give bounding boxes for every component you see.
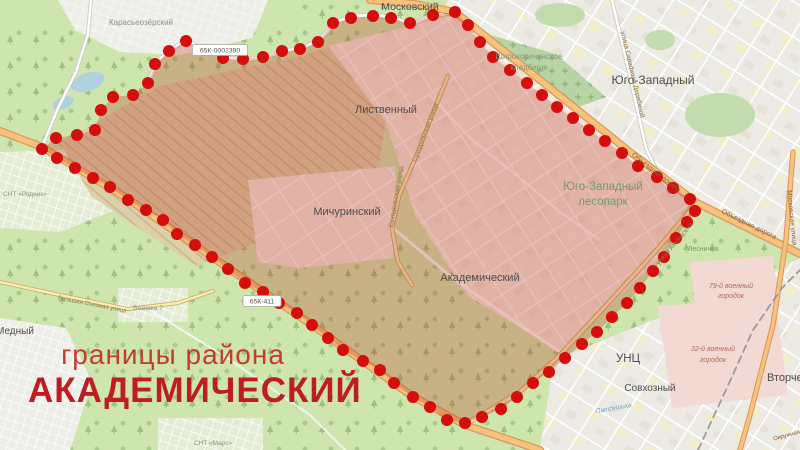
boundary-dot <box>50 132 62 144</box>
slide: 65К-000239065К-411 МосковскийКарасьеозёр… <box>0 0 800 450</box>
boundary-dot <box>591 326 603 338</box>
map-label: Карасьеозёрский <box>109 18 173 27</box>
boundary-dot <box>122 194 134 206</box>
boundary-dot <box>495 403 507 415</box>
boundary-dot <box>407 391 419 403</box>
map-label: Вторчермет <box>767 372 800 384</box>
boundary-dot <box>87 172 99 184</box>
boundary-dot <box>441 414 453 426</box>
boundary-dot <box>424 401 436 413</box>
boundary-dot <box>345 12 357 24</box>
boundary-dot <box>51 152 63 164</box>
boundary-dot <box>476 411 488 423</box>
boundary-dot <box>357 355 369 367</box>
boundary-dot <box>327 17 339 29</box>
boundary-dot <box>536 89 548 101</box>
map-label: Лесничка <box>688 246 719 253</box>
boundary-dot <box>474 36 486 48</box>
boundary-dot <box>140 204 152 216</box>
boundary-dot <box>89 124 101 136</box>
boundary-dot <box>337 344 349 356</box>
boundary-dot <box>599 135 611 147</box>
map-label: Лиственный <box>355 104 417 116</box>
boundary-dot <box>36 143 48 155</box>
boundary-dot <box>149 58 161 70</box>
boundary-dot <box>171 228 183 240</box>
boundary-dot <box>385 12 397 24</box>
map-label: Юго-Западный <box>612 73 695 87</box>
map-label: Мичуринский <box>313 206 380 218</box>
map-label: Вязовка 7 <box>133 305 163 312</box>
map-label: Юго-Западный <box>563 181 643 193</box>
boundary-dot <box>388 377 400 389</box>
boundary-dot <box>511 391 523 403</box>
boundary-dot <box>71 129 83 141</box>
map-label: 79-й военный <box>709 282 753 290</box>
boundary-dot <box>551 101 563 113</box>
map-label: Совхозный <box>624 383 675 394</box>
map-label: Академический <box>440 272 519 284</box>
map-label: кладбище <box>510 63 548 72</box>
map-label: городок <box>700 356 727 364</box>
map-label: Медный <box>0 326 34 337</box>
boundary-dot <box>647 265 659 277</box>
boundary-dot <box>276 45 288 57</box>
boundary-dot <box>449 6 461 18</box>
road-ref-text: 65К-411 <box>250 299 275 306</box>
boundary-dot <box>312 36 324 48</box>
map-label: лесопарк <box>578 196 628 208</box>
boundary-dot <box>404 17 416 29</box>
map-label: Широкореченское <box>496 52 563 61</box>
boundary-dot <box>206 251 218 263</box>
boundary-dot <box>104 181 116 193</box>
boundary-dot <box>127 89 139 101</box>
boundary-dot <box>257 51 269 63</box>
boundary-dot <box>142 77 154 89</box>
map-label: городок <box>718 292 745 300</box>
boundary-dot <box>374 364 386 376</box>
boundary-dot <box>291 307 303 319</box>
boundary-dot <box>163 45 175 57</box>
boundary-dot <box>222 263 234 275</box>
boundary-dot <box>567 112 579 124</box>
boundary-dot <box>459 417 471 429</box>
boundary-dot <box>294 43 306 55</box>
boundary-dot <box>180 35 192 47</box>
boundary-dot <box>616 147 628 159</box>
boundary-dot <box>69 162 81 174</box>
boundary-dot <box>559 352 571 364</box>
boundary-dot <box>621 297 633 309</box>
boundary-dot <box>95 104 107 116</box>
map-label: УНЦ <box>616 353 641 365</box>
map-label: СНТ «Родник» <box>3 191 47 198</box>
boundary-dot <box>543 366 555 378</box>
boundary-dot <box>684 193 696 205</box>
road-ref-text: 65К-0002390 <box>200 48 240 55</box>
boundary-dot <box>322 332 334 344</box>
map-label: 32-й военный <box>691 345 735 353</box>
boundary-dot <box>576 338 588 350</box>
boundary-dot <box>239 277 251 289</box>
map-label: СНТ «Марс» <box>194 440 233 447</box>
map-label: Московский <box>381 1 439 13</box>
boundary-dot <box>157 214 169 226</box>
boundary-dot <box>583 124 595 136</box>
boundary-dot <box>689 205 701 217</box>
boundary-dot <box>189 239 201 251</box>
boundary-dot <box>527 377 539 389</box>
boundary-dot <box>606 311 618 323</box>
road-ref-badge: 65К-0002390 <box>192 45 247 56</box>
road-ref-badge: 65К-411 <box>243 296 281 307</box>
boundary-dot <box>367 10 379 22</box>
boundary-dot <box>634 282 646 294</box>
boundary-dot <box>521 77 533 89</box>
boundary-dot <box>306 319 318 331</box>
boundary-dot <box>107 91 119 103</box>
map-canvas: 65К-000239065К-411 МосковскийКарасьеозёр… <box>0 0 800 450</box>
boundary-dot <box>462 19 474 31</box>
